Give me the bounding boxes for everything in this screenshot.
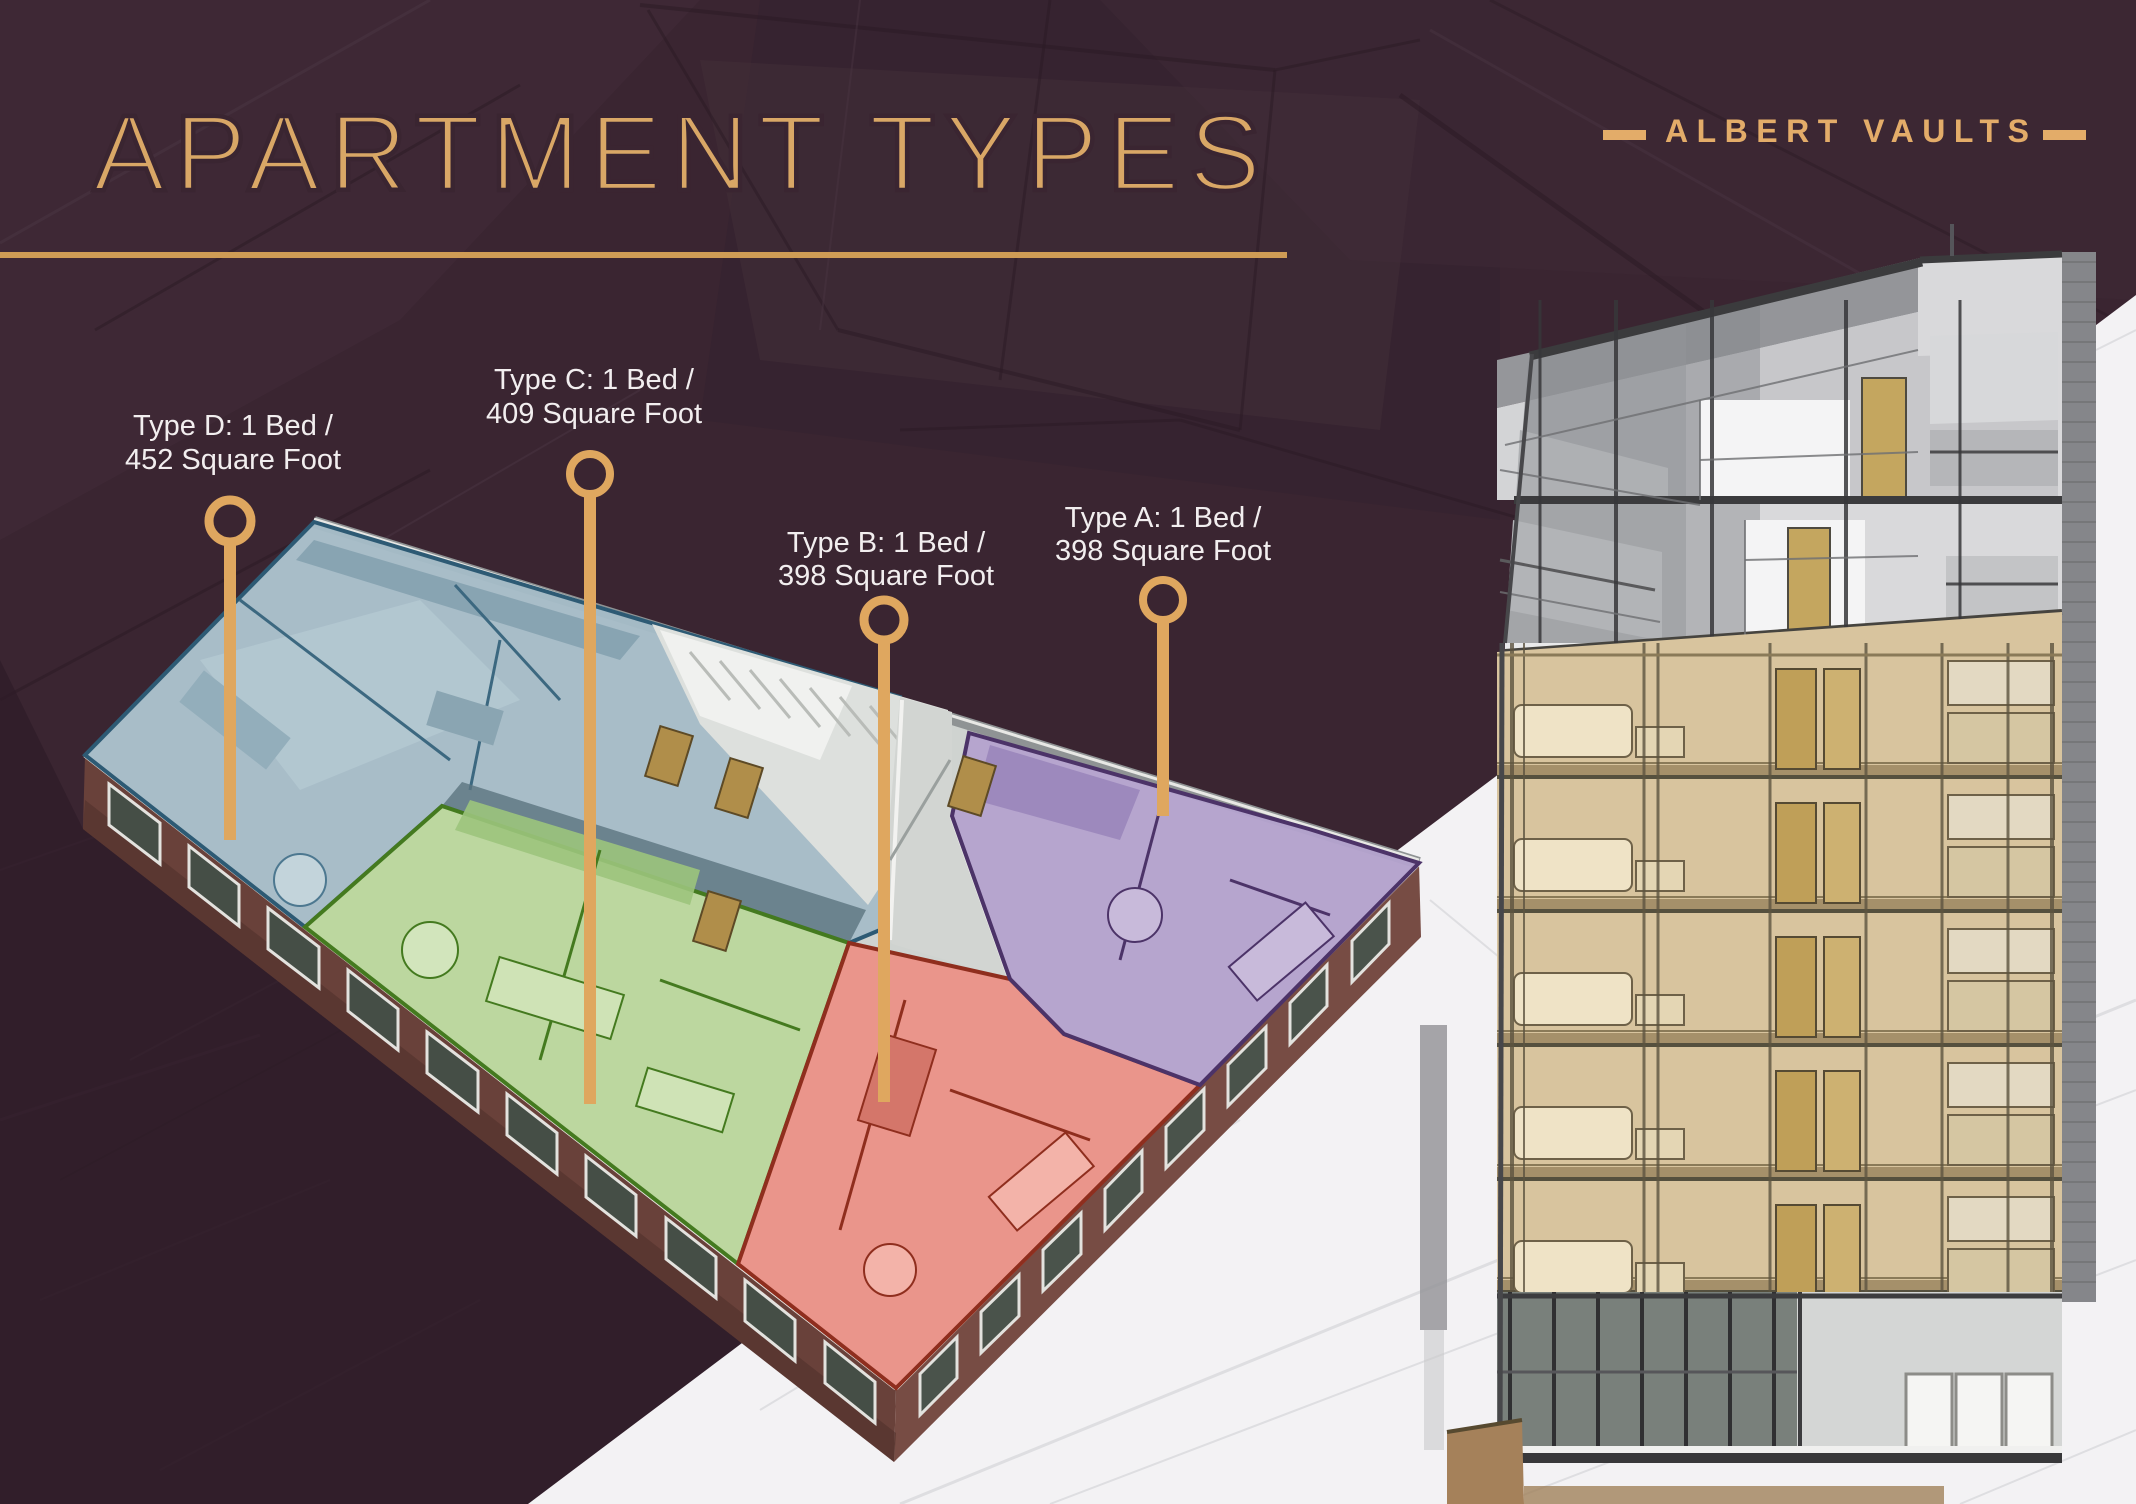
svg-text:Type C: 1 Bed /: Type C: 1 Bed / [494,364,695,396]
svg-text:ALBERT VAULTS: ALBERT VAULTS [1665,113,2037,149]
svg-text:409 Square Foot: 409 Square Foot [486,398,702,430]
svg-text:398 Square Foot: 398 Square Foot [778,560,994,592]
svg-text:Type A: 1 Bed /: Type A: 1 Bed / [1065,502,1263,534]
svg-text:398 Square Foot: 398 Square Foot [1055,535,1271,567]
svg-text:Type D: 1 Bed /: Type D: 1 Bed / [133,410,334,442]
svg-text:452 Square Foot: 452 Square Foot [125,444,341,476]
svg-text:APARTMENT TYPES: APARTMENT TYPES [93,92,1270,213]
svg-text:Type B: 1 Bed /: Type B: 1 Bed / [787,527,986,559]
